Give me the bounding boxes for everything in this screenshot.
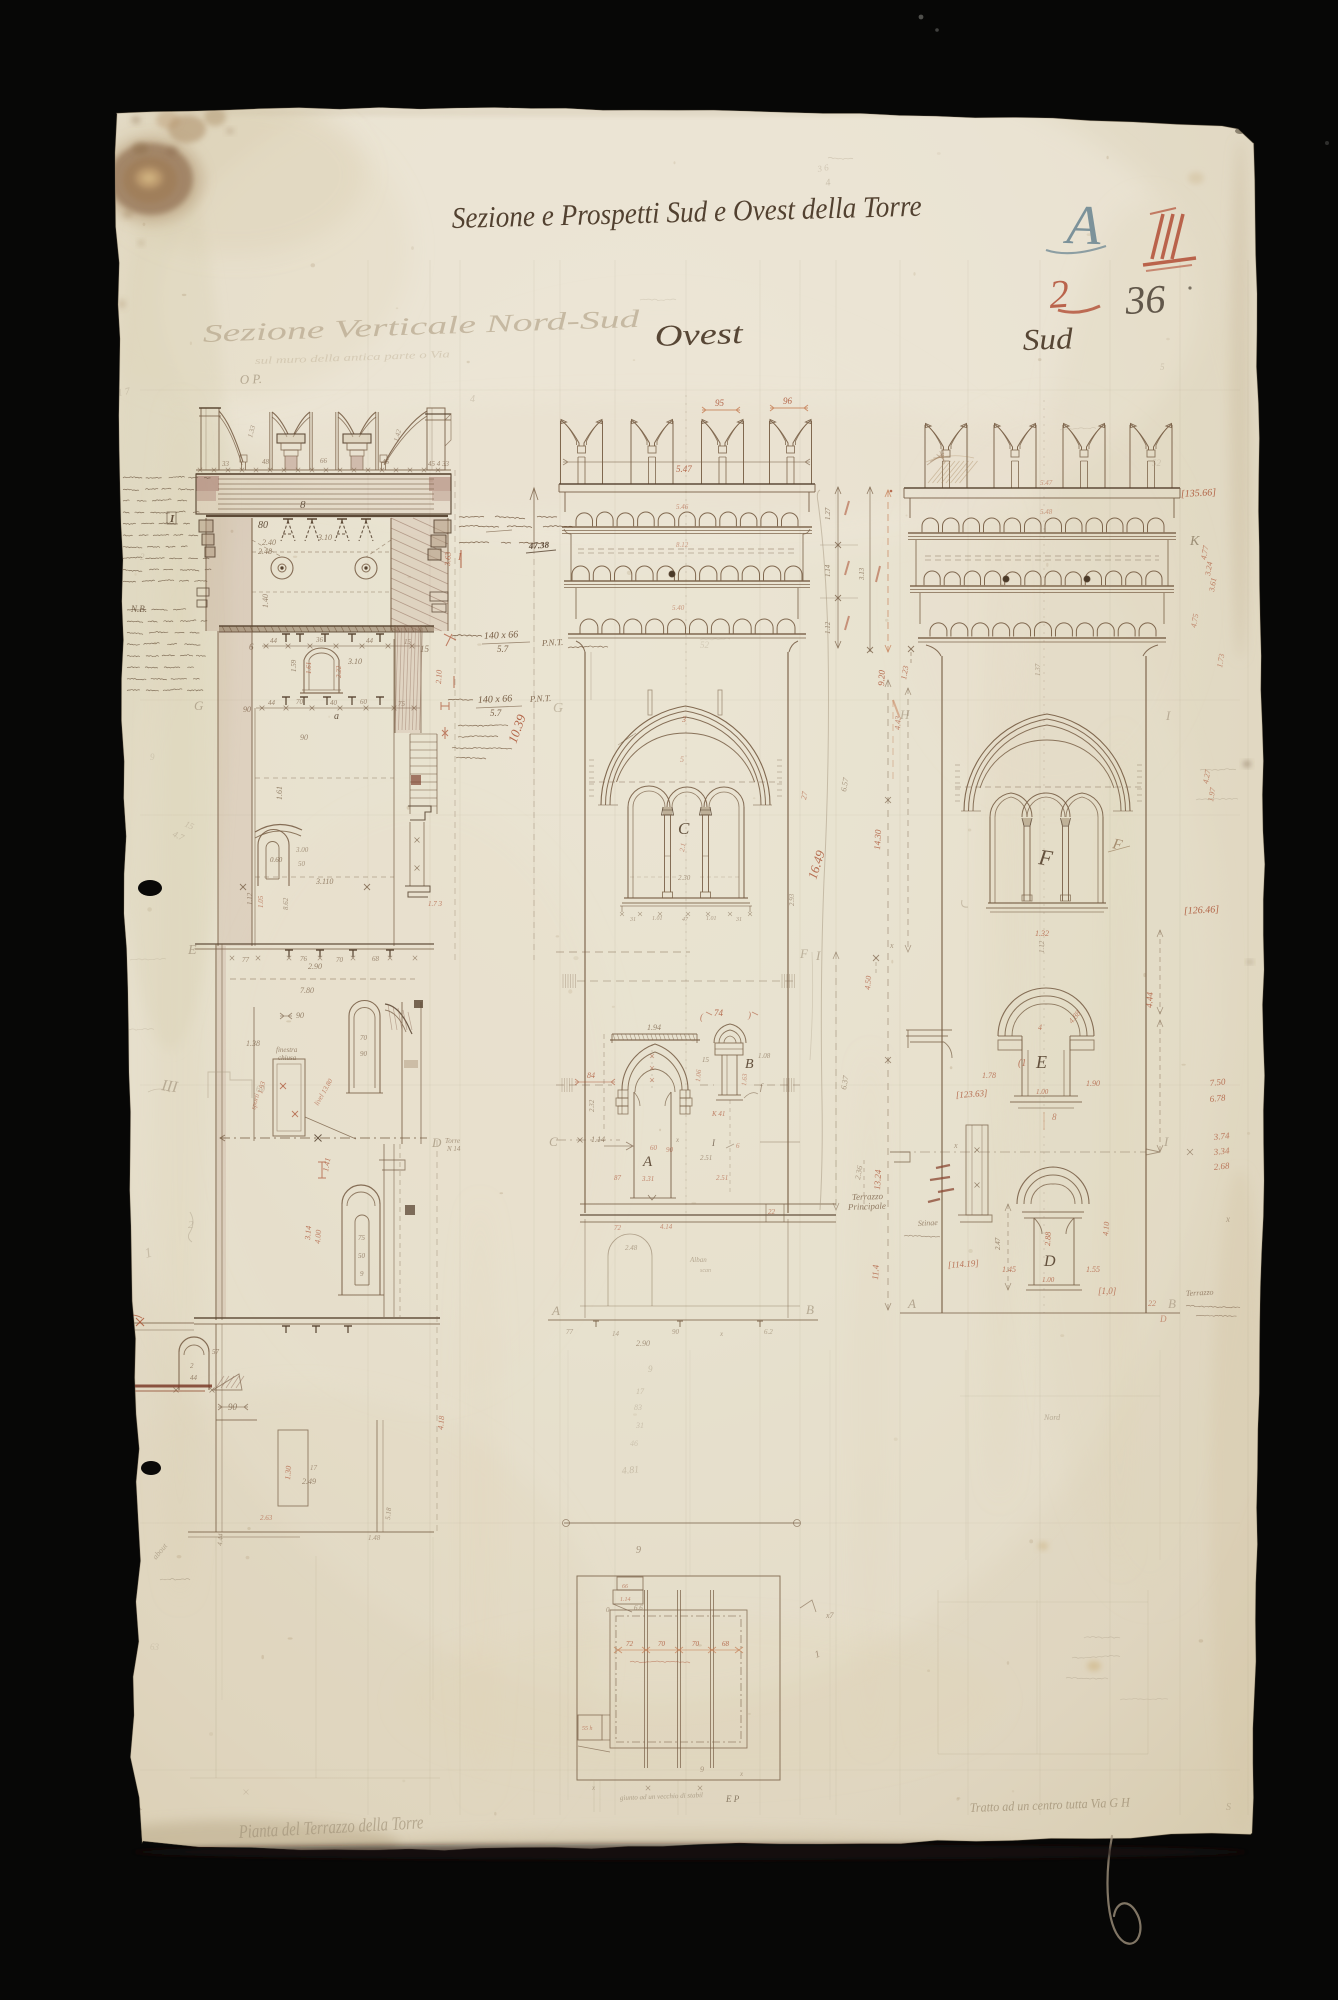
svg-text:3.14: 3.14 <box>303 1225 313 1241</box>
svg-text:N 14: N 14 <box>446 1145 461 1153</box>
svg-text:5: 5 <box>680 755 684 764</box>
svg-text:2.40: 2.40 <box>262 538 276 547</box>
svg-text:Alban: Alban <box>689 1256 707 1264</box>
svg-text:76: 76 <box>300 955 308 963</box>
svg-text:Nord: Nord <box>1043 1413 1061 1422</box>
svg-text:1.59: 1.59 <box>290 659 298 672</box>
svg-text:3.10: 3.10 <box>347 657 362 666</box>
svg-text:1.61: 1.61 <box>275 786 284 800</box>
svg-text:9.20: 9.20 <box>876 669 887 686</box>
svg-text:72: 72 <box>614 1224 622 1232</box>
svg-text:F: F <box>799 946 809 961</box>
svg-text:2: 2 <box>140 552 145 562</box>
svg-text:5.7: 5.7 <box>497 644 509 654</box>
svg-text:2.51: 2.51 <box>700 1154 712 1162</box>
svg-text:8.12: 8.12 <box>676 541 689 549</box>
svg-text:6.6: 6.6 <box>634 1604 643 1612</box>
svg-text:Torre: Torre <box>445 1137 460 1145</box>
svg-text:2.49: 2.49 <box>302 1477 316 1486</box>
svg-text:70: 70 <box>692 1640 700 1648</box>
svg-text:70: 70 <box>658 1640 666 1648</box>
svg-text:5.47: 5.47 <box>1040 479 1053 487</box>
svg-text:40: 40 <box>330 699 338 707</box>
svg-text:68: 68 <box>722 1640 730 1648</box>
svg-text:66: 66 <box>622 1584 628 1590</box>
svg-text:1.14: 1.14 <box>591 1135 605 1144</box>
svg-text:7.50: 7.50 <box>1209 1076 1226 1088</box>
svg-text:2.10: 2.10 <box>434 670 444 684</box>
svg-text:1.78: 1.78 <box>982 1071 996 1080</box>
svg-text:3: 3 <box>681 715 686 724</box>
svg-text:3.110: 3.110 <box>315 877 333 886</box>
svg-text:2.47: 2.47 <box>994 1237 1002 1250</box>
svg-text:96: 96 <box>783 396 793 406</box>
svg-text:11.4: 11.4 <box>870 1264 881 1280</box>
svg-text:4: 4 <box>470 394 475 405</box>
svg-text:2.48: 2.48 <box>625 1244 638 1252</box>
svg-text:60: 60 <box>360 698 368 706</box>
svg-text:A: A <box>907 1296 916 1311</box>
svg-text:52: 52 <box>700 640 710 650</box>
svg-text:a: a <box>334 711 339 722</box>
svg-text:2.90: 2.90 <box>636 1339 650 1348</box>
svg-text:): ) <box>747 1010 751 1020</box>
svg-text:I: I <box>457 552 462 563</box>
svg-text:70: 70 <box>360 1034 368 1042</box>
svg-text:60: 60 <box>650 1144 658 1152</box>
svg-text:E P: E P <box>725 1794 740 1804</box>
svg-text:2.63: 2.63 <box>260 1514 273 1522</box>
svg-text:75: 75 <box>358 1234 366 1242</box>
svg-text:50: 50 <box>358 1252 366 1260</box>
svg-text:I: I <box>169 513 175 525</box>
svg-text:31: 31 <box>735 917 742 923</box>
svg-text:1.32: 1.32 <box>1035 929 1049 938</box>
svg-text:44: 44 <box>366 637 374 645</box>
svg-text:G: G <box>553 701 563 716</box>
svg-text:90: 90 <box>672 1328 680 1336</box>
svg-text:1.63: 1.63 <box>740 1073 749 1086</box>
svg-text:0: 0 <box>606 1606 610 1614</box>
svg-text:N.B.: N.B. <box>130 604 147 614</box>
svg-text:50: 50 <box>298 860 306 868</box>
svg-text:1.45: 1.45 <box>1002 1265 1016 1274</box>
svg-text:1.00: 1.00 <box>1042 1276 1055 1284</box>
svg-text:1.7 3: 1.7 3 <box>428 900 443 908</box>
svg-text:5.46: 5.46 <box>676 503 689 511</box>
svg-text:1.61: 1.61 <box>305 662 313 674</box>
svg-text:90: 90 <box>296 1011 304 1020</box>
svg-text:1.27: 1.27 <box>824 507 832 520</box>
svg-text:5.40: 5.40 <box>672 604 685 612</box>
svg-text:6.2: 6.2 <box>764 1328 773 1336</box>
svg-text:5.18: 5.18 <box>384 1507 393 1520</box>
svg-text:S: S <box>1226 1802 1231 1813</box>
svg-text:4.14: 4.14 <box>660 1223 673 1231</box>
svg-text:140 x 66: 140 x 66 <box>484 629 519 642</box>
svg-text:72: 72 <box>626 1640 634 1648</box>
svg-text:1.48: 1.48 <box>368 1534 381 1542</box>
svg-text:G: G <box>194 698 204 713</box>
svg-text:4.18: 4.18 <box>436 1415 446 1430</box>
svg-text:2.22: 2.22 <box>335 665 343 678</box>
svg-text:2.32: 2.32 <box>588 1099 596 1112</box>
svg-text:4: 4 <box>1038 1023 1042 1032</box>
svg-text:2.93: 2.93 <box>788 893 796 906</box>
svg-text:8: 8 <box>1052 1112 1057 1122</box>
svg-text:84: 84 <box>587 1071 595 1080</box>
svg-text:68: 68 <box>372 955 380 963</box>
svg-text:x: x <box>1225 1214 1230 1224</box>
svg-text:K 41: K 41 <box>711 1110 725 1118</box>
svg-text:4.50: 4.50 <box>863 975 873 990</box>
svg-text:80: 80 <box>258 520 268 531</box>
svg-text:1.30: 1.30 <box>283 1465 293 1480</box>
svg-text:33: 33 <box>221 460 230 468</box>
svg-text:14: 14 <box>612 1330 620 1338</box>
svg-text:Ovest: Ovest <box>654 317 744 353</box>
svg-text:5: 5 <box>1160 362 1165 372</box>
svg-text:A: A <box>1062 194 1103 257</box>
svg-text:17: 17 <box>636 1387 645 1396</box>
svg-text:x: x <box>107 632 112 642</box>
svg-text:2.48: 2.48 <box>258 547 272 556</box>
svg-text:60: 60 <box>256 1084 266 1094</box>
svg-text:47: 47 <box>682 916 689 923</box>
svg-text:5.7: 5.7 <box>490 708 502 718</box>
svg-text:15: 15 <box>702 1056 710 1064</box>
svg-text:45 4 33: 45 4 33 <box>428 460 450 468</box>
svg-text:O P.: O P. <box>239 371 262 387</box>
svg-text:1.01: 1.01 <box>706 916 717 922</box>
svg-text:3.31: 3.31 <box>641 1175 654 1183</box>
svg-text:3.00: 3.00 <box>295 846 309 854</box>
svg-text:9: 9 <box>150 752 155 762</box>
svg-text:B: B <box>806 1302 814 1317</box>
svg-text:A: A <box>551 1303 560 1318</box>
svg-text:1.12: 1.12 <box>1038 940 1046 953</box>
svg-text:x: x <box>953 1141 958 1150</box>
svg-text:8: 8 <box>300 499 306 511</box>
svg-text:D: D <box>431 1135 442 1150</box>
svg-text:chiusa: chiusa <box>278 1054 297 1062</box>
svg-text:4.10: 4.10 <box>1101 1221 1111 1236</box>
svg-text:x: x <box>889 941 894 950</box>
svg-text:22: 22 <box>1148 1299 1156 1308</box>
svg-text:31: 31 <box>635 1421 644 1430</box>
svg-text:1.00: 1.00 <box>1036 1088 1049 1096</box>
svg-text:9: 9 <box>700 1765 704 1774</box>
svg-text:[1,0]: [1,0] <box>1098 1286 1117 1296</box>
svg-text:I: I <box>1163 1134 1169 1149</box>
svg-text:4.44: 4.44 <box>1144 991 1155 1008</box>
svg-text:4.00: 4.00 <box>313 1229 323 1244</box>
svg-text:7.80: 7.80 <box>300 986 314 995</box>
svg-text:44: 44 <box>190 1374 198 1382</box>
svg-text:63: 63 <box>150 1642 160 1652</box>
svg-text:83: 83 <box>634 1403 642 1412</box>
svg-text:90: 90 <box>666 1146 674 1154</box>
svg-text:2.30: 2.30 <box>678 874 691 882</box>
svg-text:13.24: 13.24 <box>872 1169 883 1190</box>
svg-text:77: 77 <box>566 1328 574 1336</box>
svg-text:A: A <box>642 1154 653 1170</box>
svg-text:E: E <box>1035 1052 1047 1072</box>
svg-text:90: 90 <box>360 1050 368 1058</box>
svg-text:1.01: 1.01 <box>652 916 663 922</box>
svg-text:2: 2 <box>1258 1600 1263 1610</box>
svg-text:5.48: 5.48 <box>1040 508 1053 516</box>
svg-text:14.30: 14.30 <box>872 829 883 850</box>
svg-text:2.1: 2.1 <box>678 842 687 852</box>
svg-text:D: D <box>1159 1314 1167 1324</box>
svg-text:C: C <box>549 1134 558 1149</box>
svg-text:0.60: 0.60 <box>270 856 283 864</box>
svg-text:1: 1 <box>108 1097 114 1109</box>
svg-text:1.55: 1.55 <box>1086 1265 1100 1274</box>
svg-text:1.40: 1.40 <box>261 594 270 608</box>
svg-text:1.37: 1.37 <box>1034 663 1042 676</box>
svg-text:4.44: 4.44 <box>216 1533 225 1546</box>
svg-text:I: I <box>815 948 821 963</box>
svg-text:3.34: 3.34 <box>1212 1145 1230 1157</box>
svg-text:44: 44 <box>268 699 276 707</box>
svg-text:9: 9 <box>360 1270 364 1278</box>
svg-text:1.38: 1.38 <box>246 1039 260 1048</box>
svg-text:17: 17 <box>310 1464 318 1472</box>
svg-text:4.43: 4.43 <box>893 716 903 730</box>
svg-text:9: 9 <box>636 1545 641 1556</box>
svg-text:3.63: 3.63 <box>443 552 453 567</box>
svg-text:90: 90 <box>300 733 308 742</box>
svg-text:P.N.T.: P.N.T. <box>541 637 564 648</box>
svg-text:3.13: 3.13 <box>858 567 866 581</box>
svg-text:2.68: 2.68 <box>1213 1160 1230 1172</box>
svg-text:III: III <box>159 1077 179 1096</box>
svg-text:Sud: Sud <box>1022 322 1074 357</box>
svg-text:1.12: 1.12 <box>246 892 254 905</box>
svg-text:P.N.T.: P.N.T. <box>529 693 552 704</box>
svg-text:36: 36 <box>315 636 324 644</box>
svg-text:B: B <box>745 1057 754 1072</box>
svg-text:8.62: 8.62 <box>282 897 290 910</box>
svg-text:36: 36 <box>1123 276 1166 323</box>
svg-text:[135.66]: [135.66] <box>1181 487 1217 500</box>
svg-text:2.90: 2.90 <box>308 962 322 971</box>
svg-text:3.74: 3.74 <box>1212 1130 1230 1142</box>
svg-text:1.06: 1.06 <box>694 1069 703 1082</box>
svg-text:47.38: 47.38 <box>527 540 549 551</box>
svg-text:55 h: 55 h <box>582 1726 593 1732</box>
svg-text:4.81: 4.81 <box>621 1464 640 1477</box>
svg-text:B: B <box>1168 1296 1176 1311</box>
svg-text:(1: (1 <box>1018 1058 1026 1069</box>
svg-text:1.05: 1.05 <box>257 895 265 908</box>
svg-text:K: K <box>1189 534 1200 549</box>
svg-text:22: 22 <box>768 1208 776 1216</box>
svg-text:I: I <box>1165 708 1171 723</box>
svg-text:3.10: 3.10 <box>317 533 332 542</box>
svg-text:9: 9 <box>648 1364 653 1374</box>
svg-text:1.14: 1.14 <box>620 1596 631 1603</box>
svg-text:finestra: finestra <box>276 1046 298 1054</box>
svg-text:D: D <box>1043 1253 1056 1270</box>
svg-text:[126.46]: [126.46] <box>1184 904 1220 917</box>
svg-text:2: 2 <box>190 1362 194 1370</box>
svg-text:66: 66 <box>320 457 328 465</box>
svg-text:5.47: 5.47 <box>676 464 692 474</box>
svg-text:1.90: 1.90 <box>1086 1079 1100 1088</box>
svg-text:1.08: 1.08 <box>758 1052 771 1060</box>
svg-text:46: 46 <box>630 1439 638 1448</box>
svg-text:Terrazzo: Terrazzo <box>1186 1288 1214 1298</box>
svg-text:E: E <box>187 943 197 958</box>
svg-text:scan: scan <box>700 1268 711 1274</box>
svg-text:48: 48 <box>262 458 270 466</box>
svg-text:31: 31 <box>629 917 636 923</box>
svg-text:52: 52 <box>1152 458 1162 468</box>
svg-text:44: 44 <box>270 637 278 645</box>
svg-text:1.94: 1.94 <box>647 1023 661 1032</box>
svg-text:Principale: Principale <box>847 1201 886 1212</box>
svg-text:C: C <box>678 819 690 838</box>
svg-text:2.51: 2.51 <box>716 1174 728 1182</box>
svg-text:70: 70 <box>296 698 304 706</box>
svg-text:95: 95 <box>715 398 725 408</box>
svg-text:140 x 66: 140 x 66 <box>478 693 513 706</box>
svg-text:2.88: 2.88 <box>1043 1232 1053 1246</box>
svg-text:77: 77 <box>242 956 250 964</box>
svg-text:46: 46 <box>382 458 390 466</box>
svg-text:74: 74 <box>714 1008 724 1018</box>
svg-text:6.78: 6.78 <box>1209 1092 1226 1104</box>
svg-text:6: 6 <box>736 1142 740 1150</box>
svg-text:87: 87 <box>614 1174 622 1182</box>
svg-text:70: 70 <box>336 956 344 964</box>
svg-text:Stinae: Stinae <box>918 1218 939 1228</box>
